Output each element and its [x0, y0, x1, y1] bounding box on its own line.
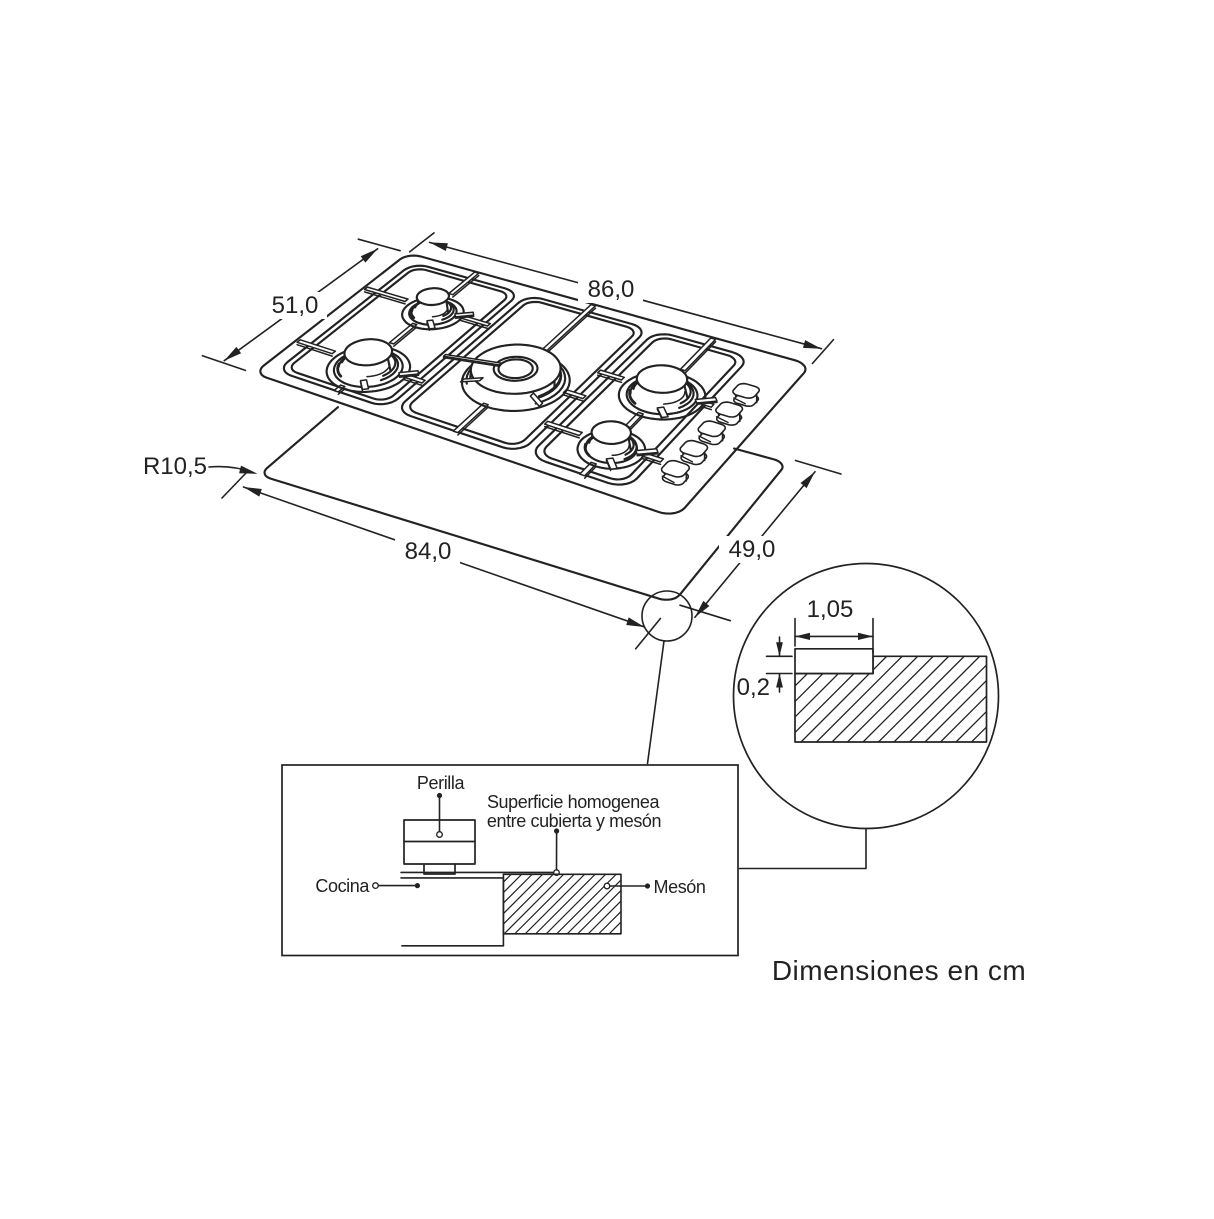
svg-text:1,05: 1,05 — [807, 596, 854, 623]
svg-text:Mesón: Mesón — [654, 877, 706, 897]
svg-text:0,2: 0,2 — [737, 674, 770, 701]
svg-text:entre cubierta y mesón: entre cubierta y mesón — [487, 811, 661, 831]
svg-text:86,0: 86,0 — [588, 276, 635, 303]
svg-text:Perilla: Perilla — [417, 773, 466, 793]
svg-text:Cocina: Cocina — [315, 876, 370, 896]
svg-text:51,0: 51,0 — [272, 292, 319, 319]
svg-text:49,0: 49,0 — [729, 536, 776, 563]
svg-text:84,0: 84,0 — [405, 538, 452, 565]
svg-text:Dimensiones en cm: Dimensiones en cm — [772, 955, 1026, 986]
svg-text:R10,5: R10,5 — [143, 453, 207, 480]
svg-text:Superficie homogenea: Superficie homogenea — [487, 792, 661, 812]
